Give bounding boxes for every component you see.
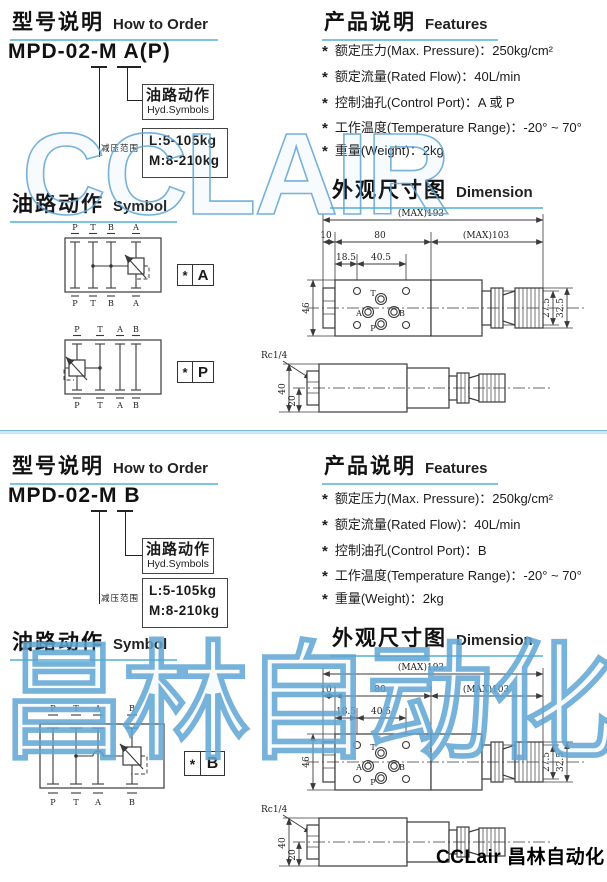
- s2-model-number: MPD-02-M B: [8, 484, 141, 508]
- s2-dimension-title-en: Dimension: [456, 632, 533, 649]
- s1-hyd-box-zh: 油路动作: [143, 87, 213, 104]
- s2-feature-item: *工作温度(Temperature Range)：-20° ~ 70°: [322, 565, 582, 585]
- s1-feature-item: *控制油孔(Control Port)：A 或 P: [322, 92, 515, 112]
- s1-range-line2: M:8-210kg: [149, 151, 227, 171]
- s2-range-box: L:5-105kg M:8-210kg: [142, 578, 228, 628]
- dim-label-185: 18.5: [336, 253, 356, 263]
- asterisk-bullet-icon: *: [322, 143, 328, 160]
- port-label: P: [74, 401, 80, 410]
- s2-feature-text-2: 额定流量(Rated Flow)：40L/min: [335, 517, 521, 532]
- s1-symbol-title: 油路动作 Symbol: [10, 188, 177, 223]
- port-label-a: A: [355, 763, 362, 772]
- s2-order-title: 型号说明 How to Order: [10, 450, 218, 485]
- s1-range-label: 减压范围: [101, 142, 139, 154]
- symbol-body: [40, 724, 164, 788]
- catalog-page: 型号说明 How to Order MPD-02-M A(P) 油路动作 Hyd…: [0, 0, 607, 882]
- s2-tag-b: * B: [184, 751, 225, 776]
- s1-dimension-title-en: Dimension: [456, 184, 533, 201]
- s2-dimension-title-zh: 外观尺寸图: [332, 622, 447, 652]
- s2-feature-item: *重量(Weight)：2kg: [322, 588, 444, 608]
- s2-features-title-en: Features: [425, 460, 488, 477]
- s2-feature-text-3: 控制油孔(Control Port)：B: [335, 543, 487, 558]
- port-label: B: [108, 223, 114, 232]
- asterisk-bullet-icon: *: [322, 120, 328, 137]
- port-label: T: [73, 704, 79, 713]
- s2-features-title-zh: 产品说明: [324, 450, 416, 480]
- rc-port-label: Rc1/4: [261, 805, 288, 815]
- junction-dot: [91, 264, 94, 267]
- port-label-b: B: [399, 763, 405, 772]
- s1-tag-a: * A: [177, 264, 214, 286]
- tag-star: *: [185, 752, 201, 775]
- dim-label-overall: (MAX)193: [398, 208, 445, 219]
- s1-leader-line-range: [99, 68, 100, 157]
- dim-label-10: 10: [320, 231, 332, 241]
- s1-features-title: 产品说明 Features: [322, 6, 498, 41]
- dim-label-20: 20: [288, 849, 298, 861]
- s2-symbol-title-zh: 油路动作: [12, 626, 104, 656]
- footer-brand: CCLair 昌林自动化: [436, 842, 605, 869]
- s2-leader-line-hyd: [125, 512, 126, 556]
- port-label: P: [50, 704, 56, 713]
- s1-model-underline-ap: [117, 66, 141, 68]
- s1-feature-item: *重量(Weight)：2kg: [322, 140, 444, 160]
- port-label: B: [133, 401, 139, 410]
- s1-feature-item: *额定压力(Max. Pressure)：250kg/cm²: [322, 40, 553, 60]
- port-label: A: [132, 299, 139, 308]
- s2-symbol-title-en: Symbol: [113, 636, 167, 653]
- port-label-a: A: [355, 309, 362, 318]
- s1-order-title-en: How to Order: [113, 16, 208, 33]
- port-label: T: [90, 223, 96, 232]
- junction-dot: [109, 264, 112, 267]
- port-label-t: T: [370, 743, 376, 752]
- port-label: P: [74, 325, 80, 334]
- port-label: T: [90, 299, 96, 308]
- s1-features-title-en: Features: [425, 16, 488, 33]
- s1-feature-item: *工作温度(Temperature Range)：-20° ~ 70°: [322, 117, 582, 137]
- port-label-b: B: [399, 309, 405, 318]
- s1-range-line1: L:5-105kg: [149, 131, 227, 151]
- s1-feature-text-3: 控制油孔(Control Port)：A 或 P: [335, 95, 515, 110]
- s1-symbol-title-zh: 油路动作: [12, 188, 104, 218]
- s1-model-number: MPD-02-M A(P): [8, 40, 171, 64]
- s1-leader-line-hyd: [127, 68, 128, 101]
- dim-label-103: (MAX)103: [463, 684, 510, 695]
- s2-feature-item: *控制油孔(Control Port)：B: [322, 540, 487, 560]
- asterisk-bullet-icon: *: [322, 568, 328, 585]
- junction-dot: [98, 366, 101, 369]
- dim-label-405: 40.5: [371, 253, 391, 263]
- asterisk-bullet-icon: *: [322, 517, 328, 534]
- junction-dot: [74, 754, 78, 758]
- port-label: B: [108, 299, 114, 308]
- s2-range-line2: M:8-210kg: [149, 601, 227, 621]
- dim-label-405: 40.5: [371, 707, 391, 717]
- section-divider: [0, 430, 607, 434]
- s2-dimension-title: 外观尺寸图 Dimension: [330, 622, 543, 657]
- s1-features-title-zh: 产品说明: [324, 6, 416, 36]
- symbol-body: [65, 238, 161, 292]
- port-label: P: [50, 798, 56, 807]
- s2-leader-line-hyd-h: [125, 555, 142, 556]
- tag-letter: B: [201, 752, 224, 775]
- port-label: A: [116, 325, 123, 334]
- s1-feature-text-4: 工作温度(Temperature Range)：-20° ~ 70°: [335, 120, 582, 135]
- s1-hyd-box-en: Hyd.Symbols: [143, 104, 213, 116]
- s2-range-label: 减压范围: [101, 592, 139, 604]
- s2-hyd-box-en: Hyd.Symbols: [143, 558, 213, 570]
- tag-star: *: [178, 362, 193, 382]
- s1-dimension-title-zh: 外观尺寸图: [332, 174, 447, 204]
- asterisk-bullet-icon: *: [322, 95, 328, 112]
- port-label: A: [94, 798, 101, 807]
- s1-range-box: L:5-105kg M:8-210kg: [142, 128, 228, 178]
- s1-order-title-zh: 型号说明: [12, 6, 104, 36]
- dim-label-40: 40: [278, 837, 288, 849]
- dim-label-overall: (MAX)193: [398, 662, 445, 673]
- s2-leader-line-range: [99, 512, 100, 604]
- s2-features-title: 产品说明 Features: [322, 450, 498, 485]
- dim-label-20: 20: [288, 395, 298, 407]
- port-label: P: [72, 223, 78, 232]
- port-label: A: [94, 704, 101, 713]
- s1-feature-item: *额定流量(Rated Flow)：40L/min: [322, 66, 521, 86]
- port-label-p: P: [370, 778, 376, 787]
- port-label: B: [129, 798, 135, 807]
- s2-feature-text-5: 重量(Weight)：2kg: [335, 591, 444, 606]
- s1-feature-text-1: 额定压力(Max. Pressure)：250kg/cm²: [335, 43, 553, 58]
- port-label: T: [97, 325, 103, 334]
- asterisk-bullet-icon: *: [322, 491, 328, 508]
- s2-order-title-zh: 型号说明: [12, 450, 104, 480]
- port-label: T: [73, 798, 79, 807]
- tag-star: *: [178, 265, 193, 285]
- s1-order-title: 型号说明 How to Order: [10, 6, 218, 41]
- s2-feature-item: *额定流量(Rated Flow)：40L/min: [322, 514, 521, 534]
- s1-symbol-diagram-a: P T B A P T B A: [57, 222, 172, 310]
- s1-hyd-symbols-box: 油路动作 Hyd.Symbols: [142, 84, 214, 120]
- dim-label-103: (MAX)103: [463, 230, 510, 241]
- dim-label-40: 40: [278, 383, 288, 395]
- rc-port-label: Rc1/4: [261, 351, 288, 361]
- s1-feature-text-5: 重量(Weight)：2kg: [335, 143, 444, 158]
- asterisk-bullet-icon: *: [322, 543, 328, 560]
- port-label: B: [133, 325, 139, 334]
- s1-feature-text-2: 额定流量(Rated Flow)：40L/min: [335, 69, 521, 84]
- s1-dimension-drawing: (MAX)193 10 80 (MAX)103 18.5 40.5 46 31 …: [253, 204, 605, 434]
- tag-letter: P: [193, 362, 213, 382]
- asterisk-bullet-icon: *: [322, 43, 328, 60]
- port-label: A: [116, 401, 123, 410]
- dim-label-185: 18.5: [336, 707, 356, 717]
- s1-leader-line-hyd-h: [127, 100, 142, 101]
- tag-letter: A: [193, 265, 213, 285]
- asterisk-bullet-icon: *: [322, 591, 328, 608]
- port-label: P: [72, 299, 78, 308]
- s2-order-title-en: How to Order: [113, 460, 208, 477]
- s2-feature-item: *额定压力(Max. Pressure)：250kg/cm²: [322, 488, 553, 508]
- asterisk-bullet-icon: *: [322, 69, 328, 86]
- s2-symbol-diagram-b: P T A B P T A B: [32, 702, 172, 814]
- port-label-t: T: [370, 289, 376, 298]
- dim-label-10: 10: [320, 685, 332, 695]
- s2-hyd-symbols-box: 油路动作 Hyd.Symbols: [142, 538, 214, 574]
- dim-label-80: 80: [374, 685, 386, 695]
- s2-range-line1: L:5-105kg: [149, 581, 227, 601]
- port-label: B: [129, 704, 135, 713]
- s1-tag-p: * P: [177, 361, 214, 383]
- s2-feature-text-1: 额定压力(Max. Pressure)：250kg/cm²: [335, 491, 553, 506]
- port-label-p: P: [370, 324, 376, 333]
- valve-side-view: [293, 364, 553, 412]
- dim-label-80: 80: [374, 231, 386, 241]
- s2-feature-text-4: 工作温度(Temperature Range)：-20° ~ 70°: [335, 568, 582, 583]
- port-label: T: [97, 401, 103, 410]
- s1-symbol-title-en: Symbol: [113, 198, 167, 215]
- port-label: A: [132, 223, 139, 232]
- s2-symbol-title: 油路动作 Symbol: [10, 626, 177, 661]
- s1-symbol-diagram-p: P T A B P T A B: [57, 324, 172, 412]
- s2-hyd-box-zh: 油路动作: [143, 541, 213, 558]
